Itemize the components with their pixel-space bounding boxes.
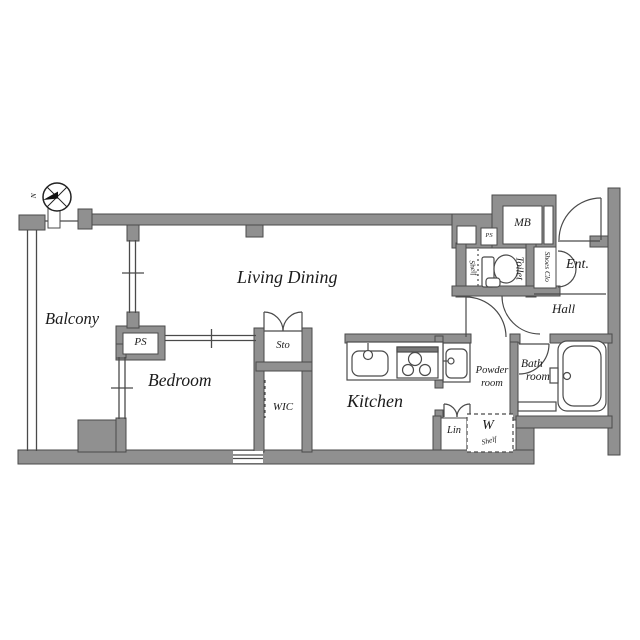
room-label-powder-2: room	[461, 379, 523, 390]
compass-north-label: N	[30, 193, 38, 198]
room-label-bedroom: Bedroom	[148, 372, 212, 390]
bath-panel-icon	[550, 368, 558, 383]
room-label-toilet: Toilet	[513, 245, 524, 291]
room-label-bath-1: Bath	[521, 359, 543, 371]
label-washer-letter: W	[477, 419, 499, 433]
floor-plan-page: Balcony Living Dining Bedroom Kitchen PS…	[0, 0, 640, 640]
bedroom-bottom-window	[233, 451, 263, 463]
room-label-living-dining: Living Dining	[237, 268, 338, 286]
compass-icon	[43, 183, 71, 211]
label-linen: Lin	[441, 426, 467, 437]
bath-bench-icon	[518, 402, 556, 411]
toilet-base-icon	[486, 278, 500, 287]
label-wic: WIC	[264, 402, 302, 413]
room-label-kitchen: Kitchen	[347, 392, 403, 410]
label-mb: MB	[503, 218, 542, 230]
label-shoes-closet: Shoes Clo	[543, 244, 551, 290]
room-label-powder-1: Powder	[461, 366, 523, 377]
label-ps-balcony: PS	[123, 337, 158, 348]
room-label-bath-2: room	[526, 372, 550, 384]
room-label-entrance: Ent.	[566, 258, 589, 272]
room-label-hall: Hall	[552, 302, 575, 315]
label-ps-meter: PS	[481, 233, 497, 240]
label-sto: Sto	[264, 341, 302, 352]
room-label-balcony: Balcony	[45, 311, 99, 328]
